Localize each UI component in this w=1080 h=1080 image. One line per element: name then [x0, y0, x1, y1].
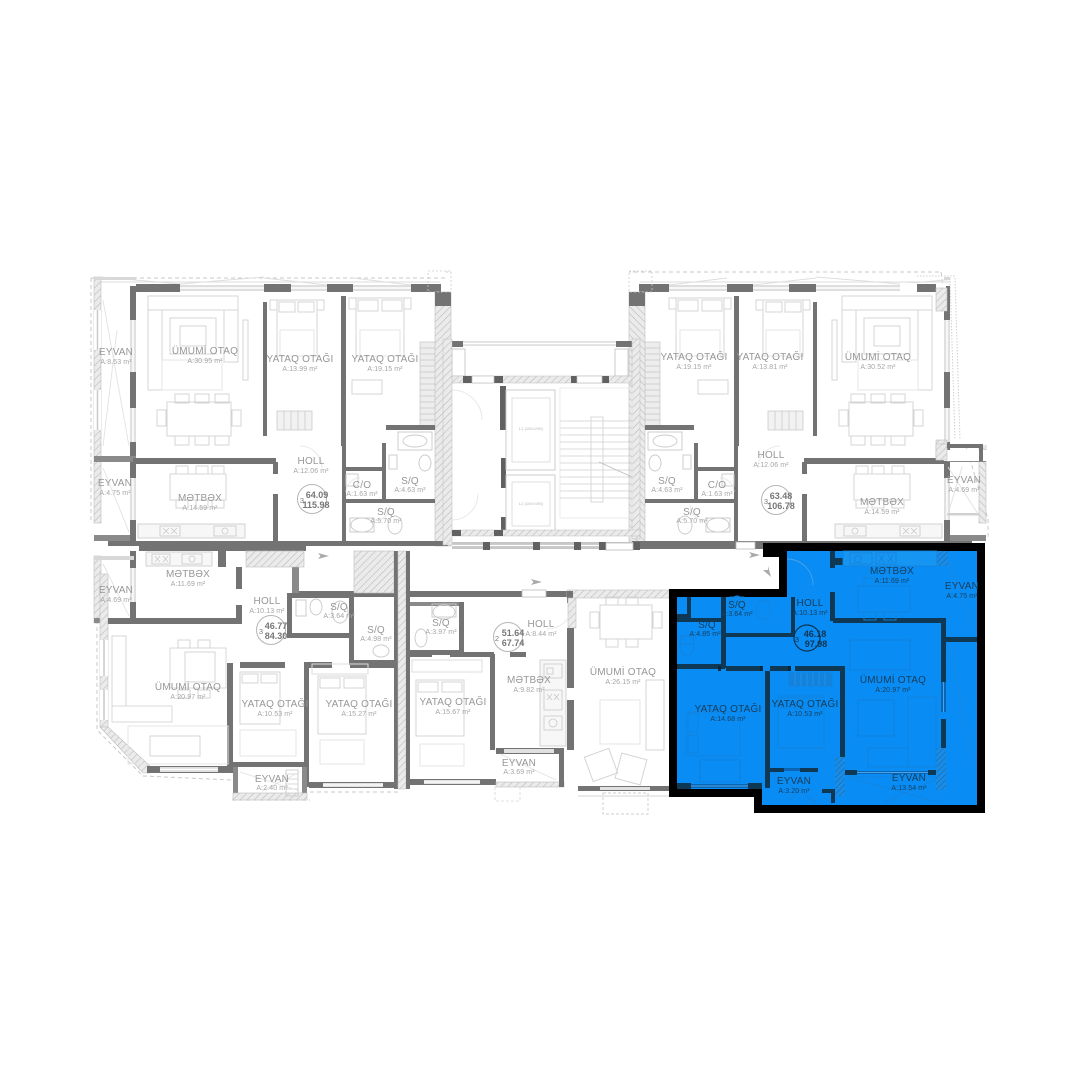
svg-text:A:11.69 m²: A:11.69 m²: [171, 581, 206, 588]
svg-text:EYVAN: EYVAN: [255, 774, 289, 785]
svg-text:S/Q: S/Q: [377, 507, 395, 518]
svg-text:A:10.53 m²: A:10.53 m²: [257, 711, 293, 718]
svg-text:A:8.53 m²: A:8.53 m²: [100, 359, 132, 366]
svg-text:S/Q: S/Q: [728, 600, 746, 611]
svg-text:A:19.15 m²: A:19.15 m²: [367, 366, 403, 373]
svg-text:115.98: 115.98: [302, 500, 329, 510]
svg-text:A:3.97 m²: A:3.97 m²: [425, 629, 457, 636]
svg-text:YATAQ OTAĞI: YATAQ OTAĞI: [694, 702, 761, 715]
svg-text:EYVAN: EYVAN: [99, 347, 133, 358]
svg-text:HOLL: HOLL: [758, 450, 785, 461]
svg-text:A:10.13 m²: A:10.13 m²: [792, 610, 828, 617]
svg-text:YATAQ OTAĞI: YATAQ OTAĞI: [771, 697, 838, 710]
svg-text:EYVAN: EYVAN: [777, 776, 811, 787]
svg-text:A:5.70 m²: A:5.70 m²: [370, 518, 402, 525]
svg-text:A:13.54 m²: A:13.54 m²: [891, 785, 927, 792]
svg-text:A:12.06 m²: A:12.06 m²: [753, 462, 789, 469]
svg-text:A:15.67 m²: A:15.67 m²: [435, 709, 471, 716]
svg-text:A:11.69 m²: A:11.69 m²: [875, 578, 910, 585]
svg-text:ÜMUMİ OTAQ: ÜMUMİ OTAQ: [845, 350, 911, 363]
svg-text:51.64: 51.64: [502, 628, 525, 638]
svg-text:L2 (100×195): L2 (100×195): [519, 501, 544, 506]
svg-text:A:4.69 m²: A:4.69 m²: [100, 597, 132, 604]
svg-text:S/Q: S/Q: [401, 476, 419, 487]
svg-text:S/Q: S/Q: [367, 625, 385, 636]
svg-text:MƏTBƏX: MƏTBƏX: [870, 566, 914, 577]
svg-text:MƏTBƏX: MƏTBƏX: [166, 569, 210, 580]
svg-text:ÜMUMİ OTAQ: ÜMUMİ OTAQ: [172, 344, 238, 357]
svg-text:YATAQ OTAĞI: YATAQ OTAĞI: [660, 350, 727, 363]
svg-text:A:14.59 m²: A:14.59 m²: [864, 509, 900, 516]
svg-text:YATAQ OTAĞI: YATAQ OTAĞI: [419, 695, 486, 708]
svg-text:97.98: 97.98: [805, 639, 828, 649]
svg-text:MƏTBƏX: MƏTBƏX: [860, 497, 904, 508]
svg-text:A:1.63 m²: A:1.63 m²: [346, 491, 378, 498]
svg-text:A:4.63 m²: A:4.63 m²: [651, 487, 683, 494]
svg-text:EYVAN: EYVAN: [99, 585, 133, 596]
svg-text:46.77: 46.77: [265, 621, 288, 631]
svg-text:YATAQ OTAĞI: YATAQ OTAĞI: [325, 697, 392, 710]
svg-text:A:12.06 m²: A:12.06 m²: [293, 468, 329, 475]
svg-text:A:9.82 m²: A:9.82 m²: [513, 687, 545, 694]
svg-text:MƏTBƏX: MƏTBƏX: [178, 493, 222, 504]
svg-text:ÜMUMİ OTAQ: ÜMUMİ OTAQ: [860, 673, 926, 686]
svg-text:A:4.75 m²: A:4.75 m²: [946, 593, 978, 600]
svg-text:EYVAN: EYVAN: [502, 758, 536, 769]
svg-text:YATAQ OTAĞI: YATAQ OTAĞI: [351, 352, 418, 365]
svg-text:3: 3: [259, 627, 263, 636]
svg-text:A:2.40 m²: A:2.40 m²: [256, 785, 288, 792]
svg-text:A:5.70 m²: A:5.70 m²: [676, 518, 708, 525]
svg-text:A:13.99 m²: A:13.99 m²: [282, 366, 318, 373]
svg-text:YATAQ OTAĞI: YATAQ OTAĞI: [266, 352, 333, 365]
svg-text:A:10.53 m²: A:10.53 m²: [787, 711, 823, 718]
svg-text:L1 (100×295): L1 (100×295): [519, 426, 544, 431]
svg-text:YATAQ OTAĞI: YATAQ OTAĞI: [736, 350, 803, 363]
svg-text:A:4.75 m²: A:4.75 m²: [99, 490, 131, 497]
svg-text:S/Q: S/Q: [432, 618, 450, 629]
svg-text:HOLL: HOLL: [797, 598, 824, 609]
svg-text:EYVAN: EYVAN: [945, 581, 979, 592]
svg-text:67.74: 67.74: [502, 638, 525, 648]
svg-text:A:15.27 m²: A:15.27 m²: [341, 711, 377, 718]
svg-text:84.30: 84.30: [265, 631, 288, 641]
svg-text:A:10.13 m²: A:10.13 m²: [249, 608, 285, 615]
svg-text:C/O: C/O: [708, 480, 726, 491]
svg-text:S/Q: S/Q: [698, 620, 716, 631]
svg-text:HOLL: HOLL: [254, 596, 281, 607]
svg-text:A:4.85 m²: A:4.85 m²: [689, 631, 721, 638]
svg-text:EYVAN: EYVAN: [892, 773, 926, 784]
svg-text:ÜMUMİ OTAQ: ÜMUMİ OTAQ: [590, 665, 656, 678]
svg-text:2: 2: [495, 634, 499, 643]
svg-text:A:20.97 m²: A:20.97 m²: [170, 694, 206, 701]
svg-text:A:4.63 m²: A:4.63 m²: [394, 487, 426, 494]
svg-text:106.78: 106.78: [767, 501, 795, 511]
svg-text:A:14.59 m²: A:14.59 m²: [182, 505, 218, 512]
svg-text:46.18: 46.18: [804, 629, 827, 639]
svg-text:63.48: 63.48: [770, 491, 793, 501]
svg-text:A:19.15 m²: A:19.15 m²: [676, 364, 712, 371]
svg-text:C/O: C/O: [353, 480, 371, 491]
svg-text:A:3.20 m²: A:3.20 m²: [778, 788, 810, 795]
svg-text:A:1.63 m²: A:1.63 m²: [701, 491, 733, 498]
svg-text:A:4.98 m²: A:4.98 m²: [360, 636, 392, 643]
svg-text:A:30.52 m²: A:30.52 m²: [860, 364, 896, 371]
svg-text:EYVAN: EYVAN: [98, 478, 132, 489]
svg-text:3: 3: [795, 635, 799, 644]
svg-text:A:30.95 m²: A:30.95 m²: [187, 358, 223, 365]
svg-text:MƏTBƏX: MƏTBƏX: [507, 675, 551, 686]
svg-text:A:3.64 m²: A:3.64 m²: [323, 613, 355, 620]
svg-text:A:20.97 m²: A:20.97 m²: [875, 687, 911, 694]
svg-text:YATAQ OTAĞI: YATAQ OTAĞI: [241, 697, 308, 710]
svg-text:A:26.15 m²: A:26.15 m²: [605, 679, 641, 686]
svg-text:HOLL: HOLL: [298, 456, 325, 467]
svg-text:A:4.69 m²: A:4.69 m²: [948, 487, 980, 494]
svg-text:S/Q: S/Q: [330, 602, 348, 613]
svg-text:EYVAN: EYVAN: [947, 475, 981, 486]
svg-text:A:14.68 m²: A:14.68 m²: [710, 716, 746, 723]
svg-text:A:13.81 m²: A:13.81 m²: [752, 364, 788, 371]
svg-text:A:3.69 m²: A:3.69 m²: [503, 769, 535, 776]
svg-text:S/Q: S/Q: [658, 476, 676, 487]
svg-text:HOLL: HOLL: [528, 619, 555, 630]
svg-text:S/Q: S/Q: [683, 507, 701, 518]
svg-text:A:3.64 m²: A:3.64 m²: [721, 611, 753, 618]
svg-text:ÜMUMİ OTAQ: ÜMUMİ OTAQ: [155, 680, 221, 693]
svg-text:64.09: 64.09: [306, 490, 329, 500]
svg-text:A:8.44 m²: A:8.44 m²: [525, 631, 557, 638]
